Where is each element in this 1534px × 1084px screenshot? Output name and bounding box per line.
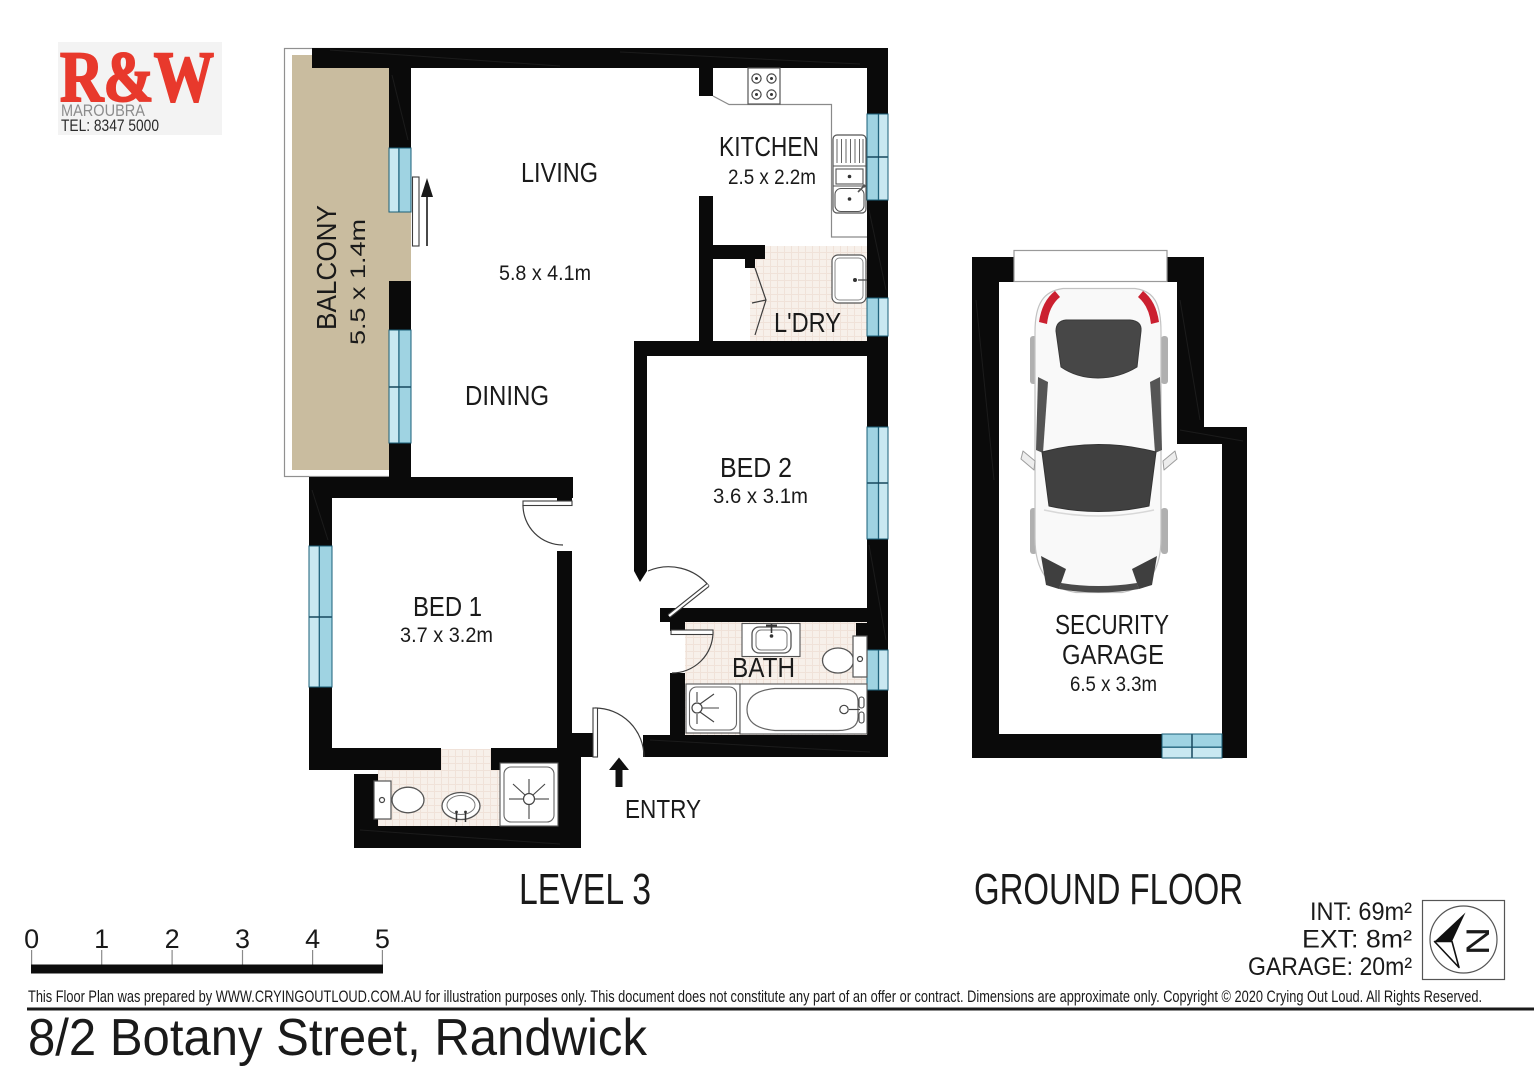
svg-text:EXT: 8m²: EXT: 8m²: [1302, 926, 1412, 954]
svg-text:ENTRY: ENTRY: [625, 794, 701, 824]
svg-text:0: 0: [24, 924, 39, 954]
svg-text:This Floor Plan was prepared b: This Floor Plan was prepared by WWW.CRYI…: [28, 988, 1482, 1006]
svg-text:5.5 x 1.4m: 5.5 x 1.4m: [347, 219, 370, 345]
svg-text:BED 2: BED 2: [720, 452, 792, 483]
svg-text:6.5 x 3.3m: 6.5 x 3.3m: [1070, 673, 1157, 696]
svg-text:GROUND FLOOR: GROUND FLOOR: [974, 865, 1243, 914]
svg-text:3.7 x 3.2m: 3.7 x 3.2m: [400, 624, 493, 647]
svg-text:N: N: [1460, 927, 1496, 955]
svg-text:3: 3: [235, 924, 250, 954]
svg-text:5.8 x 4.1m: 5.8 x 4.1m: [499, 262, 591, 285]
svg-text:4: 4: [305, 924, 320, 954]
svg-text:8/2 Botany Street, Randwick: 8/2 Botany Street, Randwick: [28, 1009, 648, 1067]
svg-text:GARAGE: GARAGE: [1062, 639, 1164, 670]
svg-text:INT: 69m²: INT: 69m²: [1310, 898, 1412, 926]
svg-text:2: 2: [165, 924, 180, 954]
svg-text:3.6 x 3.1m: 3.6 x 3.1m: [713, 485, 808, 508]
svg-text:KITCHEN: KITCHEN: [719, 131, 819, 162]
svg-text:2.5 x 2.2m: 2.5 x 2.2m: [728, 166, 816, 189]
svg-text:LEVEL 3: LEVEL 3: [519, 865, 651, 914]
svg-text:BED 1: BED 1: [413, 591, 482, 622]
svg-text:DINING: DINING: [465, 380, 549, 411]
svg-text:LIVING: LIVING: [521, 157, 598, 188]
svg-text:GARAGE: 20m²: GARAGE: 20m²: [1248, 953, 1412, 981]
svg-text:L'DRY: L'DRY: [774, 307, 841, 338]
svg-text:BALCONY: BALCONY: [311, 205, 342, 330]
svg-text:5: 5: [375, 924, 390, 954]
svg-text:1: 1: [94, 924, 109, 954]
svg-text:SECURITY: SECURITY: [1055, 609, 1169, 640]
svg-text:TEL: 8347 5000: TEL: 8347 5000: [61, 117, 159, 135]
svg-text:BATH: BATH: [732, 652, 795, 683]
